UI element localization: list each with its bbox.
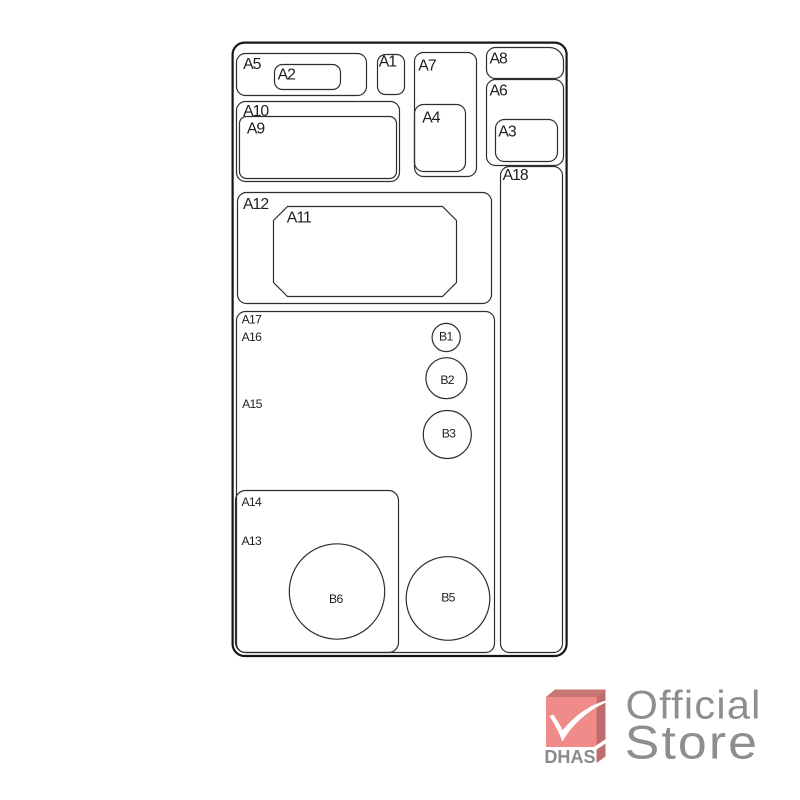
- svg-text:A13: A13: [242, 534, 263, 548]
- svg-text:DHAS: DHAS: [544, 746, 595, 767]
- svg-text:A7: A7: [418, 57, 436, 74]
- svg-text:A9: A9: [247, 121, 266, 138]
- svg-text:B1: B1: [439, 329, 453, 343]
- svg-text:B2: B2: [440, 373, 454, 387]
- svg-text:B5: B5: [441, 590, 455, 604]
- svg-text:A18: A18: [503, 167, 529, 184]
- svg-text:B3: B3: [442, 427, 456, 441]
- svg-text:A14: A14: [242, 495, 263, 509]
- svg-text:A16: A16: [242, 330, 263, 344]
- svg-text:A5: A5: [243, 56, 262, 73]
- svg-text:A15: A15: [242, 397, 263, 411]
- svg-text:A2: A2: [278, 67, 296, 84]
- svg-text:A6: A6: [490, 82, 509, 99]
- svg-text:B6: B6: [329, 592, 343, 606]
- svg-text:A4: A4: [422, 110, 441, 127]
- svg-text:A17: A17: [242, 312, 263, 326]
- svg-text:Store: Store: [625, 717, 759, 769]
- svg-text:A12: A12: [243, 196, 268, 213]
- svg-text:A1: A1: [379, 54, 398, 71]
- svg-text:A3: A3: [498, 123, 517, 140]
- svg-text:A11: A11: [287, 210, 312, 227]
- svg-text:A8: A8: [490, 51, 509, 68]
- svg-text:A10: A10: [243, 103, 269, 120]
